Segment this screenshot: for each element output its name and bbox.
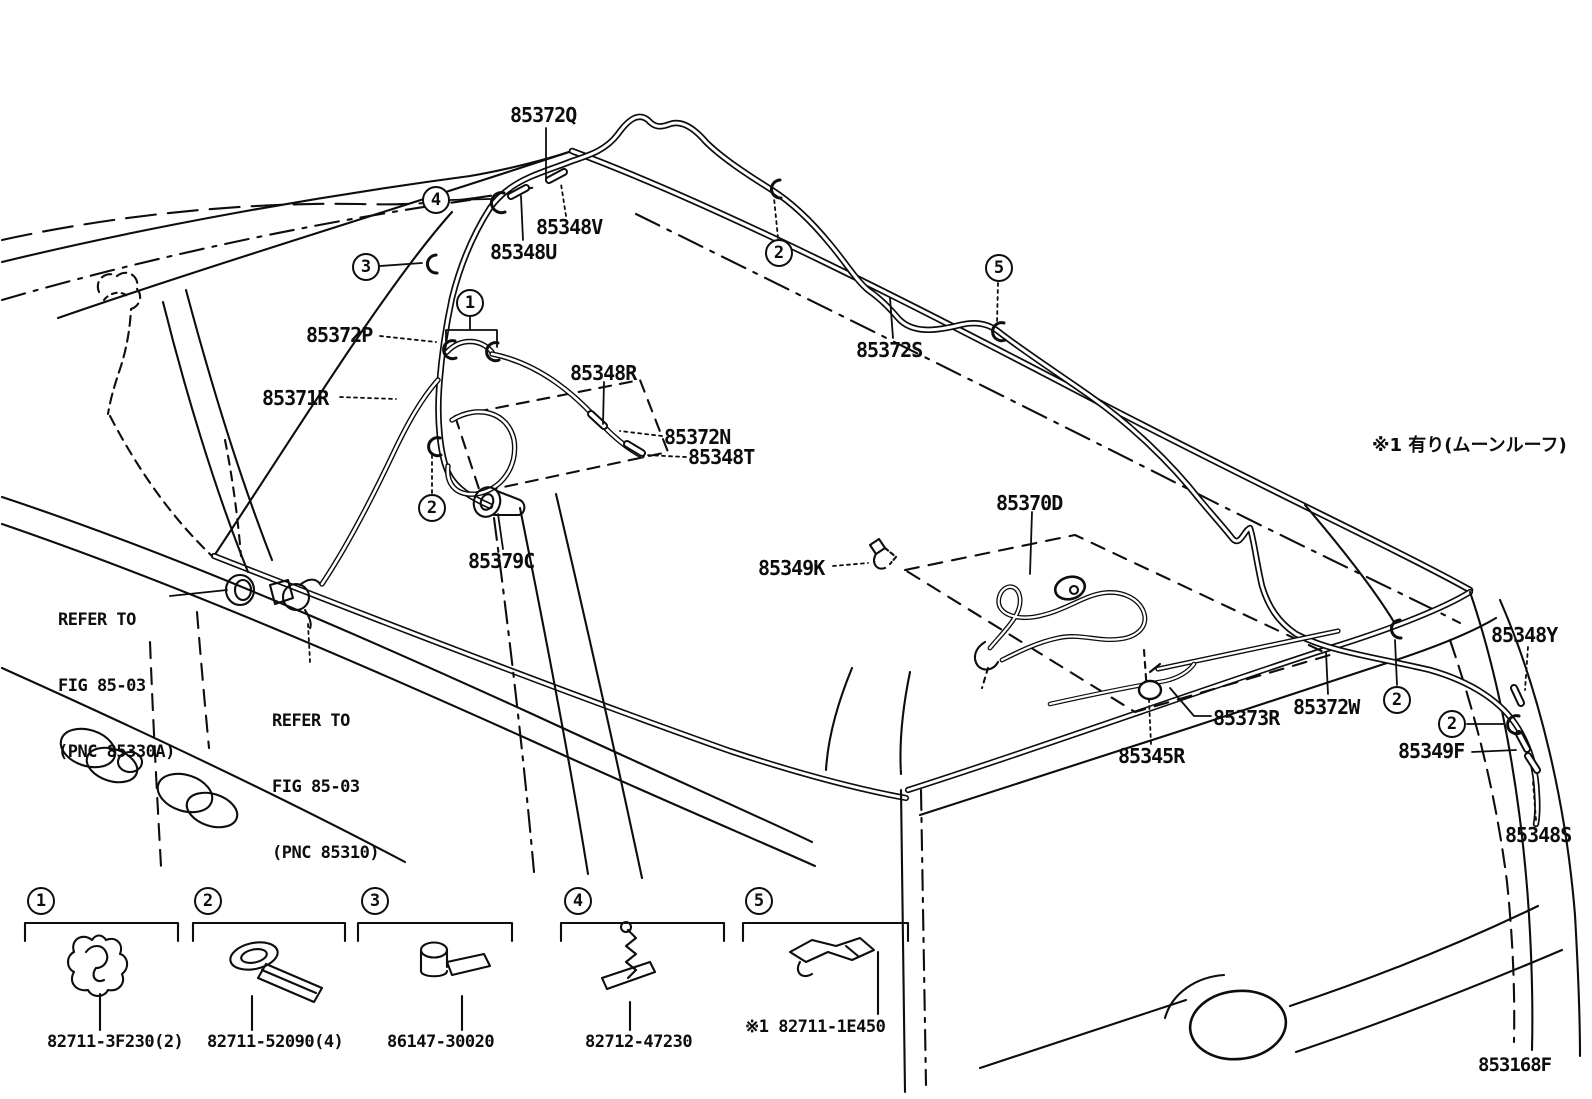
hose-85372q-85372s [438,117,1537,824]
refer-note-pnc85330a[interactable]: REFER TO FIG 85-03 (PNC 85330A) [58,565,175,807]
part-label-85348V[interactable]: 85348V [536,217,602,237]
callout-5[interactable]: 5 [985,254,1013,282]
figure-code: 853168F [1478,1054,1551,1076]
part-label-85348T[interactable]: 85348T [688,447,754,467]
refer-note-line: (PNC 85330A) [58,741,175,763]
part-label-85371R[interactable]: 85371R [262,388,328,408]
callout-2[interactable]: 2 [1383,686,1411,714]
legend-callout-5[interactable]: 5 [745,887,773,915]
rear-washer-nozzle-85370d [975,573,1147,692]
part-label-85349K[interactable]: 85349K [758,558,824,578]
callout-3[interactable]: 3 [352,253,380,281]
legend-callout-3[interactable]: 3 [361,887,389,915]
parts-diagram-canvas: 85372Q 85348V 85348U 85372P 85371R 85348… [0,0,1592,1099]
callout-1[interactable]: 1 [456,289,484,317]
callout-4[interactable]: 4 [422,186,450,214]
refer-note-line: REFER TO [58,609,175,631]
moonroof-opening-dashed [905,535,1330,712]
hose-connectors [511,172,1537,770]
legend-callout-4[interactable]: 4 [564,887,592,915]
legend-part-number-3[interactable]: 86147-30020 [387,1034,494,1051]
legend-glyph-clip-3 [421,943,490,977]
part-label-85372Q[interactable]: 85372Q [510,105,576,125]
part-label-85372N[interactable]: 85372N [664,427,730,447]
part-label-85372W[interactable]: 85372W [1293,697,1359,717]
part-label-85348R[interactable]: 85348R [570,363,636,383]
refer-note-line: FIG 85-03 [272,776,379,798]
refer-note-line: REFER TO [272,710,379,732]
diagram-line-art [0,0,1592,1099]
part-label-85348Y[interactable]: 85348Y [1491,625,1557,645]
part-label-85348U[interactable]: 85348U [490,242,556,262]
legend-glyph-clip-5 [790,938,874,976]
liftgate-oval [1187,986,1290,1064]
part-label-85370D[interactable]: 85370D [996,493,1062,513]
legend-part-number-5[interactable]: ※1 82711-1E450 [745,1019,885,1036]
legend-part-number-4[interactable]: 82712-47230 [585,1034,692,1051]
moonroof-note: ※1 有り(ムーンルーフ) [1372,437,1567,455]
part-label-85372S[interactable]: 85372S [856,340,922,360]
legend-part-number-1[interactable]: 82711-3F230(2) [47,1034,183,1051]
part-label-85345R[interactable]: 85345R [1118,746,1184,766]
grommet-85345r [1139,681,1161,699]
legend-callout-1[interactable]: 1 [27,887,55,915]
refer-note-line: FIG 85-03 [58,675,175,697]
part-label-85373R[interactable]: 85373R [1213,708,1279,728]
legend-glyph-clip-2 [228,938,322,1002]
legend-part-number-2[interactable]: 82711-52090(4) [207,1034,343,1051]
refer-note-line: (PNC 85310) [272,842,379,864]
callout-2[interactable]: 2 [765,239,793,267]
part-label-85372P[interactable]: 85372P [306,325,372,345]
legend-callout-2[interactable]: 2 [194,887,222,915]
legend-glyph-clip-4 [602,922,655,989]
refer-note-pnc85310[interactable]: REFER TO FIG 85-03 (PNC 85310) [272,666,379,908]
clip-85349k [870,539,896,569]
callout-2[interactable]: 2 [418,494,446,522]
legend-graphics [25,922,908,1030]
part-label-85379C[interactable]: 85379C [468,551,534,571]
legend-glyph-clip-1 [68,936,127,997]
part-label-85348S[interactable]: 85348S [1505,825,1571,845]
part-label-85349F[interactable]: 85349F [1398,741,1464,761]
callout-2[interactable]: 2 [1438,710,1466,738]
